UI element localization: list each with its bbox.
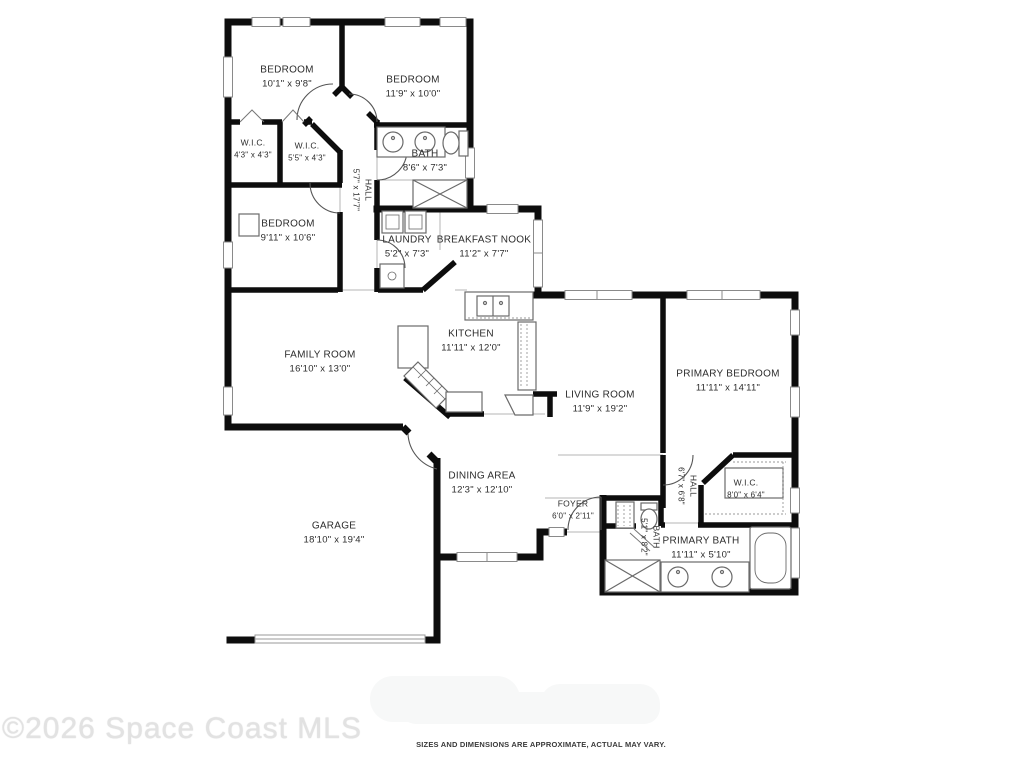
copyright-watermark: ©2026 Space Coast MLS xyxy=(2,712,362,746)
room-label-dining-area: DINING AREA12'3" x 12'10" xyxy=(448,468,515,497)
room-label-primary-bath: PRIMARY BATH11'11" x 5'10" xyxy=(663,533,740,562)
disclaimer-text: SIZES AND DIMENSIONS ARE APPROXIMATE, AC… xyxy=(416,740,666,749)
room-label-breakfast-nook: BREAKFAST NOOK11'2" x 7'7" xyxy=(437,232,531,261)
toilet-tank xyxy=(459,131,468,156)
room-label-family-room: FAMILY ROOM16'10" x 13'0" xyxy=(284,347,355,376)
room-label-primary-bedroom: PRIMARY BEDROOM11'11" x 14'11" xyxy=(676,366,779,395)
room-label-living-room: LIVING ROOM11'9" x 19'2" xyxy=(565,387,634,416)
sink xyxy=(383,132,403,152)
room-label-bedroom-2: BEDROOM11'9" x 10'0" xyxy=(386,72,441,101)
room-label-bedroom-3: BEDROOM9'11" x 10'6" xyxy=(261,216,316,245)
room-label-hall-1: HALL5'7" x 17'7" xyxy=(350,169,375,211)
room-label-kitchen: KITCHEN11'11" x 12'0" xyxy=(441,326,500,355)
room-label-laundry: LAUNDRY5'2" x 7'3" xyxy=(382,232,431,261)
kitchen-counter-2 xyxy=(446,392,482,412)
floorplan-page: BEDROOM10'1" x 9'8"BEDROOM11'9" x 10'0"W… xyxy=(0,0,1024,768)
room-label-garage: GARAGE18'10" x 19'4" xyxy=(304,518,365,547)
linen-shelves xyxy=(616,502,634,528)
room-label-wic-3: W.I.C.8'0" x 6'4" xyxy=(727,477,765,502)
room-label-bedroom-1: BEDROOM10'1" x 9'8" xyxy=(260,62,313,91)
kitchen-appliance xyxy=(505,395,533,415)
room-label-bath-2: BATH5'1" x 8'2" xyxy=(638,518,663,556)
room-label-foyer: FOYER6'0" x 2'11" xyxy=(552,498,594,523)
garage-entry-door-arc xyxy=(408,434,437,469)
wic1-bifold-icon xyxy=(240,110,264,122)
wic2-bifold-icon xyxy=(282,110,304,122)
interior-walls xyxy=(228,22,792,526)
room-label-bath: BATH8'6" x 7'3" xyxy=(403,146,447,175)
room-label-hall-2: HALL6'7" x 6'8" xyxy=(675,467,700,505)
bedroom3-closet-box xyxy=(239,214,259,236)
room-label-wic-1: W.I.C.4'3" x 4'3" xyxy=(234,137,272,162)
floorplan-drawing xyxy=(0,0,1024,768)
kitchen-island xyxy=(398,326,428,368)
room-label-wic-2: W.I.C.5'5" x 4'3" xyxy=(288,140,326,165)
